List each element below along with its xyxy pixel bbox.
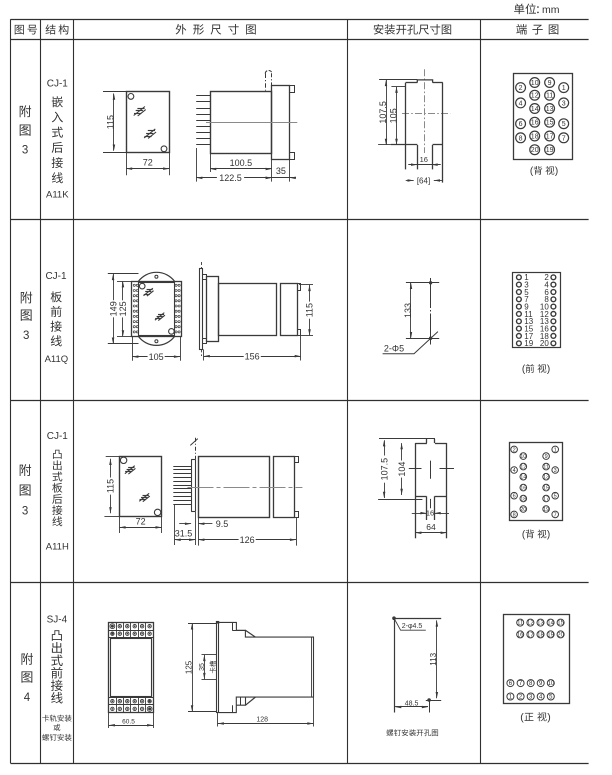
svg-text:122.5: 122.5: [219, 173, 242, 183]
svg-text:2: 2: [513, 447, 516, 453]
svg-text:(: (: [520, 712, 524, 724]
svg-text:4: 4: [519, 100, 523, 107]
svg-text:10: 10: [547, 681, 554, 687]
svg-text:15: 15: [557, 621, 564, 627]
svg-text:15: 15: [546, 120, 554, 127]
svg-text:3: 3: [22, 505, 28, 517]
svg-text:19: 19: [524, 339, 533, 348]
svg-text:10: 10: [531, 80, 539, 87]
svg-text:4: 4: [24, 692, 31, 704]
svg-text:20: 20: [557, 632, 564, 638]
svg-text:9.5: 9.5: [216, 519, 229, 529]
svg-text:CJ-1: CJ-1: [47, 431, 69, 442]
svg-text:1: 1: [562, 85, 566, 92]
svg-text:12: 12: [520, 465, 526, 471]
svg-text:5: 5: [562, 121, 566, 128]
svg-text:17: 17: [527, 632, 534, 638]
svg-text:2-Φ5: 2-Φ5: [384, 343, 404, 353]
svg-text:SJ-4: SJ-4: [47, 614, 68, 625]
svg-text:104: 104: [397, 462, 407, 477]
svg-text:12: 12: [527, 621, 534, 627]
svg-text:115: 115: [106, 115, 116, 129]
svg-text:64: 64: [426, 522, 436, 532]
svg-text:16: 16: [531, 120, 539, 127]
svg-text:A11K: A11K: [46, 190, 69, 201]
svg-text:60.5: 60.5: [122, 719, 135, 726]
svg-text:10: 10: [520, 454, 526, 460]
svg-text:6: 6: [519, 121, 523, 128]
svg-text:19: 19: [547, 632, 554, 638]
svg-text:[64]: [64]: [417, 176, 430, 185]
svg-text:3: 3: [562, 100, 566, 107]
svg-text:2: 2: [519, 85, 523, 92]
svg-text:125: 125: [118, 301, 128, 316]
svg-text:115: 115: [106, 479, 116, 493]
svg-text:7: 7: [562, 135, 566, 142]
svg-text:149: 149: [108, 301, 118, 316]
svg-text:35: 35: [199, 663, 206, 671]
svg-text:105: 105: [388, 108, 398, 123]
svg-text:16: 16: [420, 155, 428, 164]
svg-text:16: 16: [520, 486, 526, 492]
svg-text:5: 5: [554, 494, 557, 500]
svg-text:18: 18: [520, 496, 526, 502]
svg-text:107.5: 107.5: [379, 458, 389, 481]
svg-text:): ): [547, 364, 550, 375]
svg-text:17: 17: [543, 496, 549, 502]
svg-text:128: 128: [256, 716, 268, 723]
svg-text:20: 20: [540, 339, 549, 348]
svg-text:9: 9: [548, 80, 552, 87]
svg-text:133: 133: [403, 303, 413, 318]
svg-text:mm: mm: [542, 4, 560, 16]
svg-text:): ): [547, 712, 551, 724]
svg-text:48.5: 48.5: [405, 700, 419, 707]
svg-text:13: 13: [537, 621, 544, 627]
svg-text:卡槽: 卡槽: [208, 660, 217, 674]
svg-text:113: 113: [429, 652, 438, 665]
svg-text:15: 15: [543, 486, 549, 492]
svg-text:2-φ4.5: 2-φ4.5: [402, 623, 423, 630]
svg-text:): ): [555, 166, 558, 177]
svg-text:3: 3: [23, 330, 29, 342]
svg-text:7: 7: [554, 512, 557, 518]
svg-text:156: 156: [245, 351, 260, 361]
svg-text:20: 20: [520, 507, 526, 513]
svg-text:18: 18: [531, 134, 539, 141]
svg-text:115: 115: [305, 303, 315, 317]
svg-text:4: 4: [513, 468, 516, 474]
svg-text:125: 125: [185, 660, 194, 674]
svg-text:100.5: 100.5: [230, 158, 253, 168]
svg-text:6: 6: [513, 494, 516, 500]
svg-text:11: 11: [546, 93, 553, 100]
svg-text:8: 8: [513, 512, 516, 518]
svg-text:9: 9: [545, 454, 548, 460]
svg-text:16: 16: [426, 509, 434, 518]
svg-text:18: 18: [537, 632, 544, 638]
svg-text:14: 14: [531, 106, 539, 113]
svg-text:3: 3: [22, 144, 28, 156]
svg-text:17: 17: [546, 134, 554, 141]
svg-text:14: 14: [520, 475, 526, 481]
svg-text:126: 126: [240, 535, 255, 545]
svg-text:CJ-1: CJ-1: [45, 271, 67, 282]
svg-text:20: 20: [531, 147, 539, 154]
svg-text:13: 13: [543, 475, 549, 481]
svg-text:11: 11: [517, 621, 524, 627]
svg-text:12: 12: [531, 93, 539, 100]
svg-text:19: 19: [546, 147, 554, 154]
svg-text:14: 14: [547, 621, 554, 627]
svg-text:A11Q: A11Q: [45, 354, 69, 365]
svg-text:): ): [547, 530, 550, 541]
svg-text:107.5: 107.5: [378, 101, 388, 124]
svg-text:3: 3: [554, 468, 557, 474]
svg-text:CJ-1: CJ-1: [47, 79, 69, 90]
svg-text:8: 8: [519, 135, 523, 142]
svg-text:16: 16: [517, 632, 524, 638]
svg-text:31.5: 31.5: [175, 529, 193, 539]
svg-text:13: 13: [546, 106, 554, 113]
svg-text:72: 72: [136, 516, 146, 526]
svg-text:72: 72: [143, 158, 153, 168]
svg-text:35: 35: [276, 166, 286, 176]
svg-text:11: 11: [543, 465, 549, 471]
svg-text:19: 19: [543, 507, 549, 513]
svg-text:A11H: A11H: [46, 541, 69, 552]
svg-text:1: 1: [554, 447, 557, 453]
svg-text:105: 105: [149, 352, 164, 362]
